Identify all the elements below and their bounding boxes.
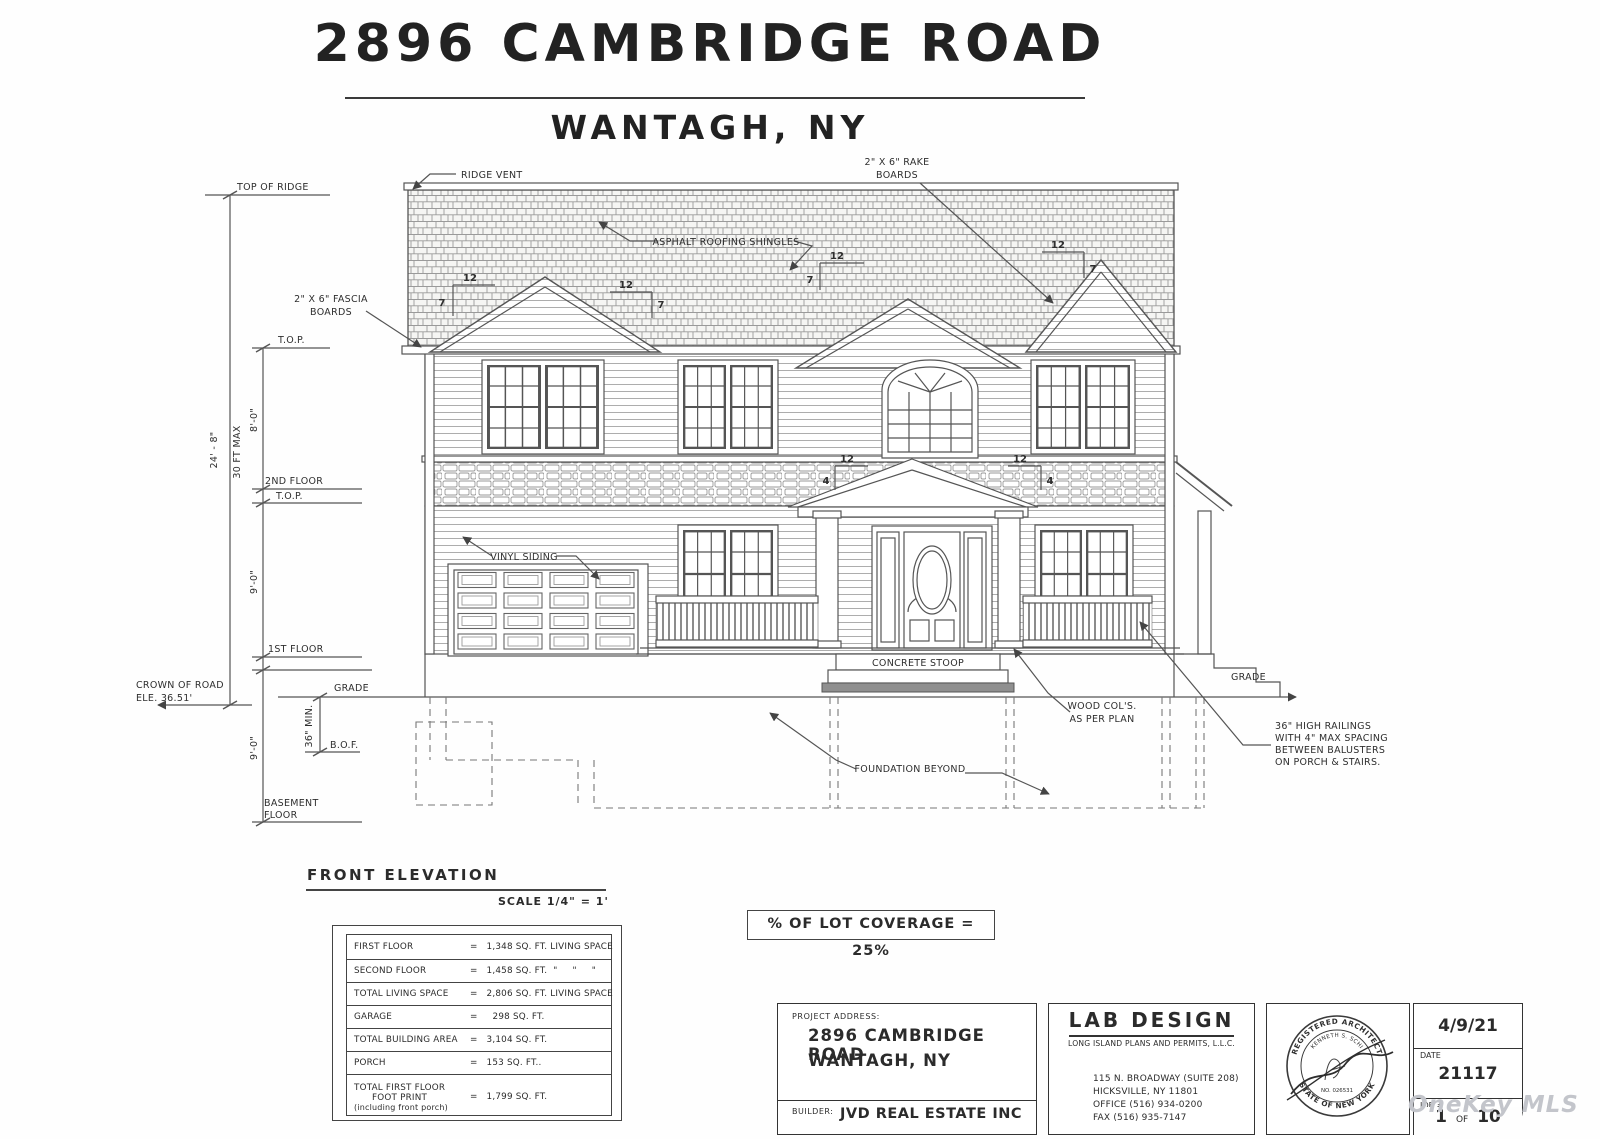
- dim-max-height: 30 FT MAX: [232, 425, 243, 478]
- label-grade-right: GRADE: [1231, 672, 1266, 683]
- project-address-line2: WANTAGH, NY: [808, 1051, 951, 1070]
- firm-address-3: OFFICE (516) 934-0200: [1093, 1100, 1203, 1110]
- watermark: OneKey MLS: [1408, 1092, 1579, 1118]
- porch-railing-right: [1023, 596, 1152, 647]
- dim-overall: 24' - 8": [209, 432, 220, 469]
- note-railing-2: WITH 4" MAX SPACING: [1275, 733, 1388, 744]
- note-fascia-2: BOARDS: [310, 307, 352, 318]
- note-railing-3: BETWEEN BALUSTERS: [1275, 745, 1385, 756]
- arched-window: [882, 360, 978, 458]
- row-value: = 298 SQ. FT.: [470, 1012, 544, 1022]
- porch-railing-left: [656, 596, 818, 647]
- table-row: SECOND FLOOR = 1,458 SQ. FT. " " ": [347, 960, 611, 983]
- corner-board-left: [425, 352, 434, 654]
- dim-footing: 36" MIN.: [304, 704, 315, 747]
- pitch-run: 12: [1051, 240, 1065, 251]
- front-elevation-drawing: TOP OF RIDGE T.O.P. 2ND FLOOR T.O.P. 1ST…: [0, 0, 1600, 1139]
- builder-name: JVD REAL ESTATE INC: [840, 1106, 1022, 1122]
- stone-water-table: [422, 456, 1177, 506]
- pitch-rise-porch: 4: [823, 476, 830, 487]
- pitch-rise-porch: 4: [1047, 476, 1054, 487]
- label-top-2: T.O.P.: [277, 335, 305, 346]
- entry-door: [872, 526, 992, 650]
- pitch-run: 12: [463, 273, 477, 284]
- label-top-of-ridge: TOP OF RIDGE: [236, 182, 309, 193]
- note-vinyl-siding: VINYL SIDING: [490, 552, 558, 563]
- firm-name: LAB DESIGN: [1049, 1008, 1254, 1032]
- table-row: TOTAL BUILDING AREA = 3,104 SQ. FT.: [347, 1029, 611, 1052]
- row-label-line3: (including front porch): [354, 1103, 470, 1112]
- pitch-rise: 7: [439, 298, 446, 309]
- label-bof: B.O.F.: [330, 740, 358, 751]
- elevation-scale: SCALE 1/4" = 1': [498, 895, 609, 908]
- area-table: FIRST FLOOR = 1,348 SQ. FT. LIVING SPACE…: [346, 934, 612, 1116]
- table-row: FIRST FLOOR = 1,348 SQ. FT. LIVING SPACE: [347, 935, 611, 960]
- firm-address-4: FAX (516) 935-7147: [1093, 1113, 1187, 1123]
- dim-basement: 9'-0": [249, 736, 260, 760]
- porch-column-right: [995, 511, 1023, 648]
- row-label: TOTAL BUILDING AREA: [354, 1035, 470, 1045]
- row-value: = 1,348 SQ. FT. LIVING SPACE: [470, 942, 613, 952]
- note-rake-2: BOARDS: [876, 170, 918, 181]
- firm-subtitle: LONG ISLAND PLANS AND PERMITS, L.L.C.: [1049, 1039, 1254, 1048]
- note-concrete-stoop: CONCRETE STOOP: [872, 658, 964, 669]
- note-shingles: ASPHALT ROOFING SHINGLES: [653, 237, 800, 248]
- note-wood-cols-2: AS PER PLAN: [1069, 714, 1134, 725]
- titleblock-stamp: REGISTERED ARCHITECT KENNETH S. SCHI STA…: [1266, 1003, 1410, 1135]
- firm-address-1: 115 N. BROADWAY (SUITE 208): [1093, 1074, 1239, 1084]
- label-basement-2: FLOOR: [264, 810, 298, 821]
- date-label: DATE: [1420, 1051, 1441, 1060]
- note-fascia-1: 2" X 6" FASCIA: [294, 294, 368, 305]
- elevation-underline: [306, 889, 606, 891]
- drawing-sheet: 2896 CAMBRIDGE ROAD WANTAGH, NY: [0, 0, 1600, 1139]
- note-railing-1: 36" HIGH RAILINGS: [1275, 721, 1371, 732]
- date-value: 4/9/21: [1414, 1016, 1522, 1036]
- ridge-vent: [404, 183, 1178, 190]
- elevation-title: FRONT ELEVATION: [307, 866, 499, 884]
- row-label: SECOND FLOOR: [354, 966, 470, 976]
- note-ridge-vent: RIDGE VENT: [461, 170, 523, 181]
- note-foundation-beyond: FOUNDATION BEYOND: [855, 764, 966, 775]
- right-side-wing: [1176, 462, 1280, 697]
- pitch-rise: 7: [658, 300, 665, 311]
- row-label-line1: TOTAL FIRST FLOOR: [354, 1083, 470, 1093]
- architect-stamp: REGISTERED ARCHITECT KENNETH S. SCHI STA…: [1267, 1004, 1406, 1131]
- row-value: = 153 SQ. FT..: [470, 1058, 541, 1068]
- row-label: TOTAL FIRST FLOOR FOOT PRINT (including …: [354, 1083, 470, 1112]
- job-value: 21117: [1414, 1064, 1522, 1084]
- label-basement-1: BASEMENT: [264, 798, 319, 809]
- pitch-rise: 7: [807, 275, 814, 286]
- second-floor-window-right: [1031, 360, 1135, 454]
- row-value: = 1,458 SQ. FT. " " ": [470, 966, 596, 976]
- pitch-run: 12: [840, 454, 854, 465]
- pitch-run: 12: [1013, 454, 1027, 465]
- pitch-rise: 7: [1090, 264, 1097, 275]
- firm-address-2: HICKSVILLE, NY 11801: [1093, 1087, 1198, 1097]
- row-label: FIRST FLOOR: [354, 942, 470, 952]
- divider: [1414, 1048, 1522, 1049]
- row-value: = 3,104 SQ. FT.: [470, 1035, 547, 1045]
- row-value: = 2,806 SQ. FT. LIVING SPACE: [470, 989, 613, 999]
- divider: [778, 1100, 1036, 1101]
- label-top-1: T.O.P.: [275, 491, 303, 502]
- label-crown-1: CROWN OF ROAD: [136, 680, 224, 691]
- row-label-line2: FOOT PRINT: [354, 1093, 470, 1103]
- titleblock-firm: LAB DESIGN LONG ISLAND PLANS AND PERMITS…: [1048, 1003, 1255, 1135]
- titleblock-project: PROJECT ADDRESS: 2896 CAMBRIDGE ROAD WAN…: [777, 1003, 1037, 1135]
- table-row: GARAGE = 298 SQ. FT.: [347, 1006, 611, 1029]
- dim-second-story: 8'-0": [249, 408, 260, 432]
- stamp-license-number: NO. 026531: [1321, 1088, 1353, 1094]
- second-floor-window-mid: [678, 360, 778, 454]
- table-row: PORCH = 153 SQ. FT..: [347, 1052, 611, 1075]
- note-rake-1: 2" X 6" RAKE: [865, 157, 930, 168]
- note-wood-cols-1: WOOD COL'S.: [1067, 701, 1136, 712]
- second-floor-window-left: [482, 360, 604, 454]
- table-row: TOTAL LIVING SPACE = 2,806 SQ. FT. LIVIN…: [347, 983, 611, 1006]
- row-value: = 1,799 SQ. FT.: [470, 1092, 547, 1102]
- pitch-run: 12: [830, 251, 844, 262]
- dimension-lines: TOP OF RIDGE T.O.P. 2ND FLOOR T.O.P. 1ST…: [136, 182, 372, 826]
- label-2nd-floor: 2ND FLOOR: [265, 476, 323, 487]
- garage-door: [448, 564, 648, 656]
- row-label: GARAGE: [354, 1012, 470, 1022]
- project-address-label: PROJECT ADDRESS:: [792, 1012, 880, 1021]
- pitch-run: 12: [619, 280, 633, 291]
- builder-label: BUILDER:: [792, 1107, 833, 1116]
- label-1st-floor: 1ST FLOOR: [268, 644, 324, 655]
- row-label: TOTAL LIVING SPACE: [354, 989, 470, 999]
- row-label: PORCH: [354, 1058, 470, 1068]
- dim-first-story: 9'-0": [249, 570, 260, 594]
- label-grade-left: GRADE: [334, 683, 369, 694]
- table-row: TOTAL FIRST FLOOR FOOT PRINT (including …: [347, 1075, 611, 1119]
- corner-board-right: [1165, 352, 1174, 654]
- label-crown-2: ELE. 36.51': [136, 693, 192, 704]
- firm-underline: [1069, 1035, 1234, 1037]
- lot-coverage: % OF LOT COVERAGE = 25%: [747, 910, 995, 940]
- note-railing-4: ON PORCH & STAIRS.: [1275, 757, 1381, 768]
